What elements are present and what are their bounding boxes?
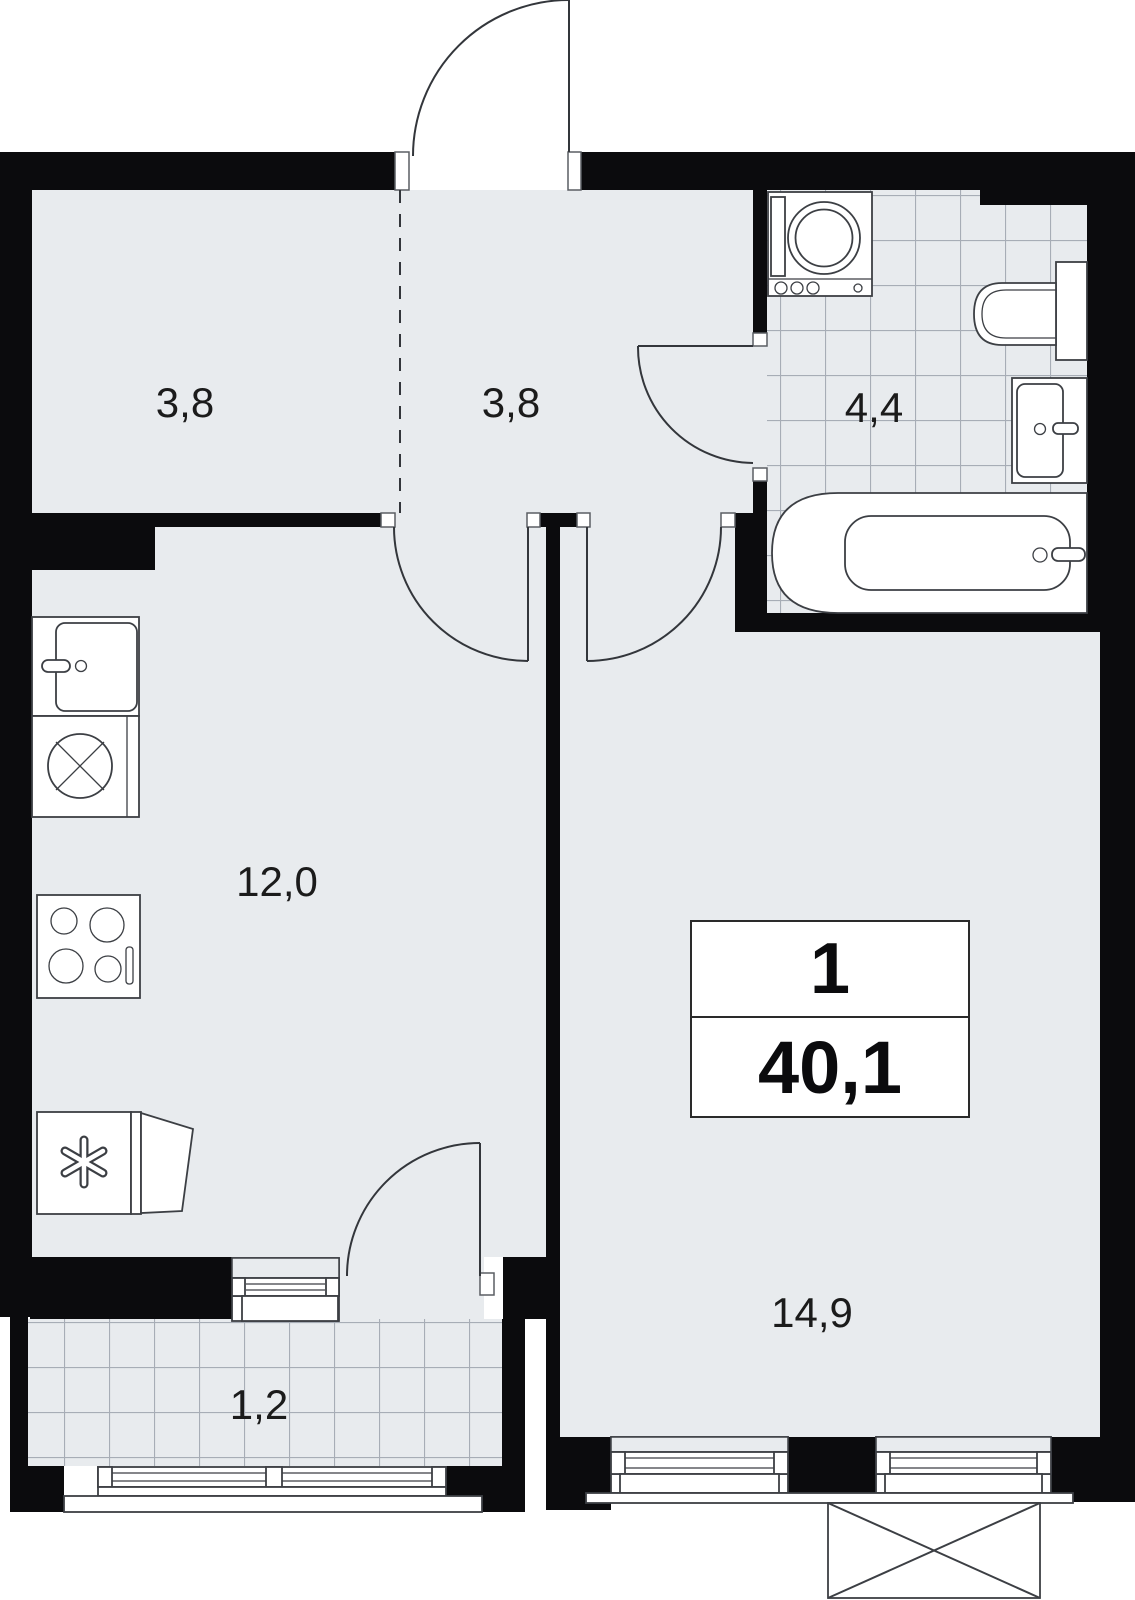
kitchen-door-threshold [394, 513, 527, 527]
dishwasher [32, 716, 139, 817]
apartment-info-box: 1 40,1 [690, 920, 970, 1118]
area-label-bathroom: 4,4 [845, 384, 903, 432]
window-ledge [586, 1493, 1073, 1503]
floor-plan: 3,8 3,8 4,4 12,0 14,9 1,2 1 40,1 [0, 0, 1135, 1600]
washing-machine [768, 192, 872, 296]
hallway-floor [32, 190, 753, 513]
balcony-glazing [64, 1467, 482, 1512]
living-door-threshold [590, 513, 721, 527]
area-label-wardrobe: 3,8 [156, 379, 214, 427]
floorplan-canvas [0, 0, 1135, 1600]
entrance-door [413, 0, 569, 156]
area-label-hallway: 3,8 [482, 379, 540, 427]
exterior-basket [828, 1503, 1040, 1598]
refrigerator [37, 1112, 193, 1214]
kitchen-sink [32, 617, 139, 716]
total-area: 40,1 [692, 1018, 968, 1116]
bathroom-door-threshold [753, 346, 767, 468]
rooms-count: 1 [692, 922, 968, 1018]
cooktop [37, 895, 140, 998]
living-room-window-left [611, 1437, 788, 1493]
balcony-door-threshold [339, 1257, 484, 1319]
area-label-kitchen: 12,0 [236, 858, 318, 906]
bathtub [772, 493, 1087, 613]
living-room-window-right [876, 1437, 1051, 1493]
area-label-living-room: 14,9 [771, 1289, 853, 1337]
area-label-balcony: 1,2 [230, 1381, 288, 1429]
bathroom-sink [1012, 378, 1087, 483]
kitchen-balcony-window [232, 1258, 339, 1321]
